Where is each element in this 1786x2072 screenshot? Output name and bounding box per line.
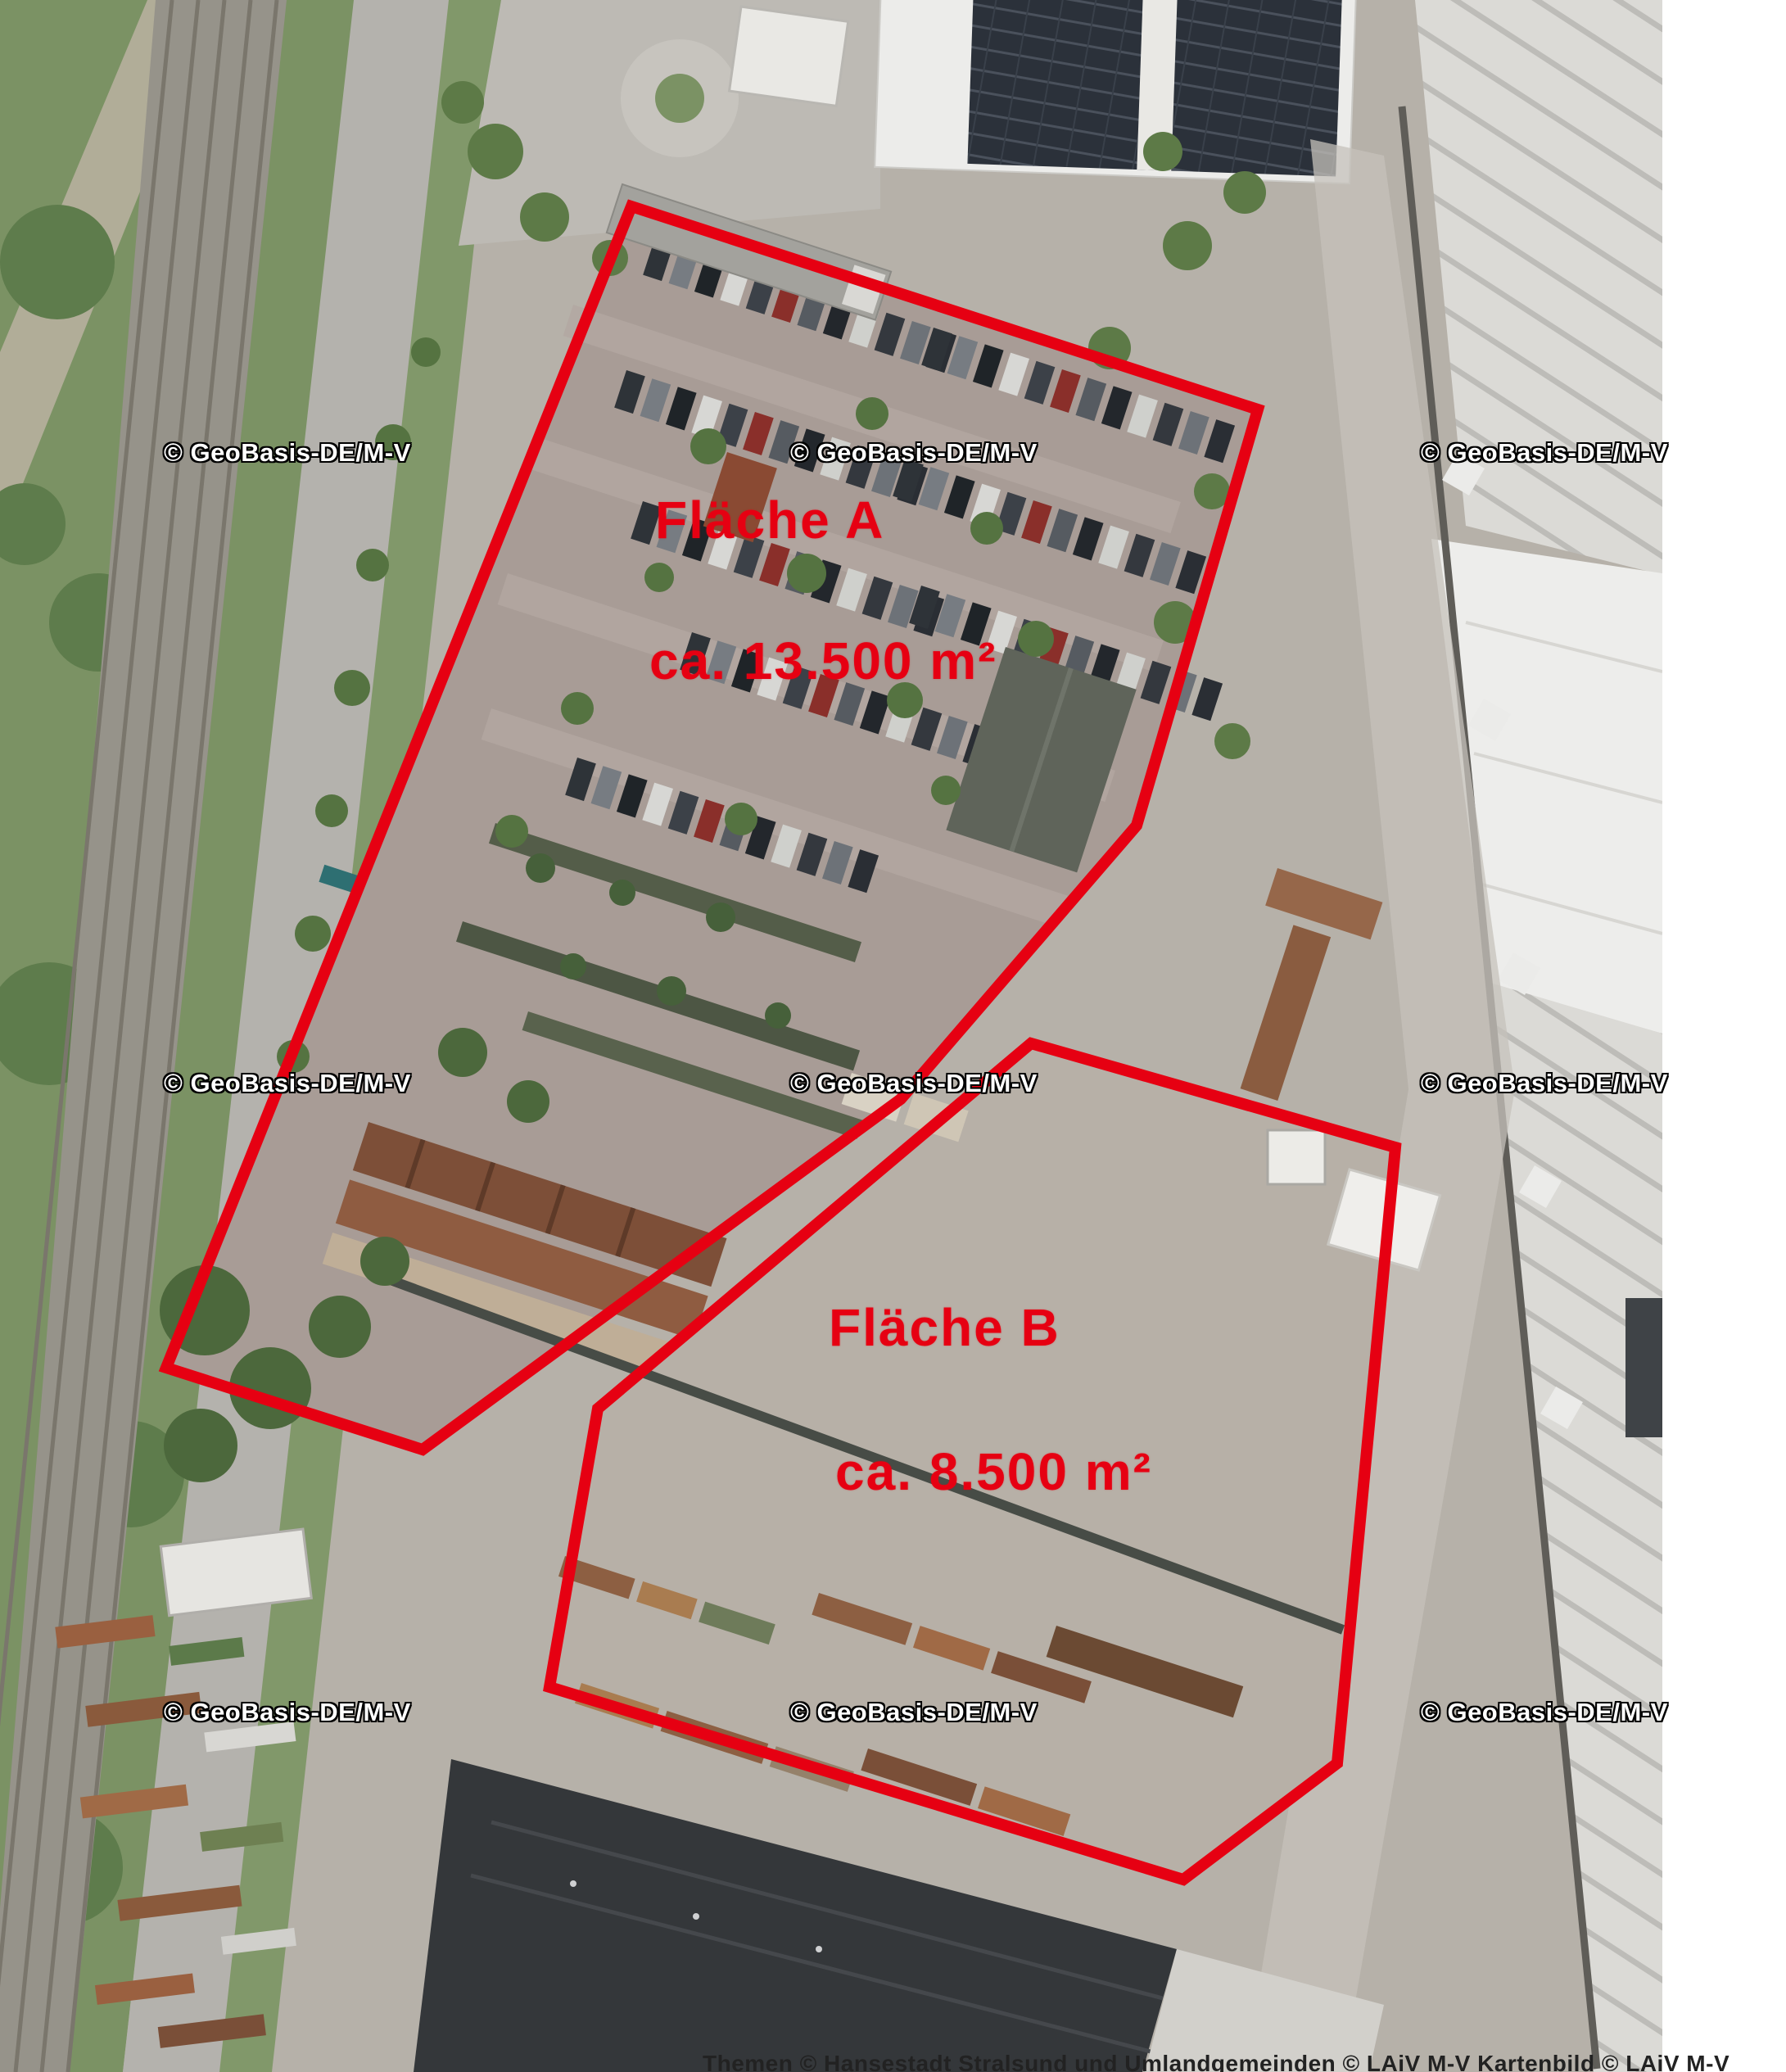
area-a-size-label: ca. 13.500 m²: [649, 631, 997, 691]
geobasis-watermark: © GeoBasis-DE/M-V: [1421, 1698, 1668, 1727]
geobasis-watermark: © GeoBasis-DE/M-V: [1421, 1069, 1668, 1098]
solar-roof-building: [875, 0, 1356, 183]
area-b-label: Fläche B: [829, 1297, 1060, 1358]
attribution-text: Themen © Hansestadt Stralsund und Umland…: [703, 2051, 1729, 2072]
area-a-label: Fläche A: [655, 490, 884, 550]
area-b-size-label: ca. 8.500 m²: [835, 1441, 1152, 1502]
aerial-map: Fläche A ca. 13.500 m² Fläche B ca. 8.50…: [0, 0, 1786, 2072]
geobasis-watermark: © GeoBasis-DE/M-V: [790, 1069, 1038, 1098]
geobasis-watermark: © GeoBasis-DE/M-V: [790, 438, 1038, 468]
geobasis-watermark: © GeoBasis-DE/M-V: [164, 1069, 411, 1098]
geobasis-watermark: © GeoBasis-DE/M-V: [164, 1698, 411, 1727]
geobasis-watermark: © GeoBasis-DE/M-V: [1421, 438, 1668, 468]
geobasis-watermark: © GeoBasis-DE/M-V: [164, 438, 411, 468]
aerial-photo: [0, 0, 1786, 2072]
geobasis-watermark: © GeoBasis-DE/M-V: [790, 1698, 1038, 1727]
